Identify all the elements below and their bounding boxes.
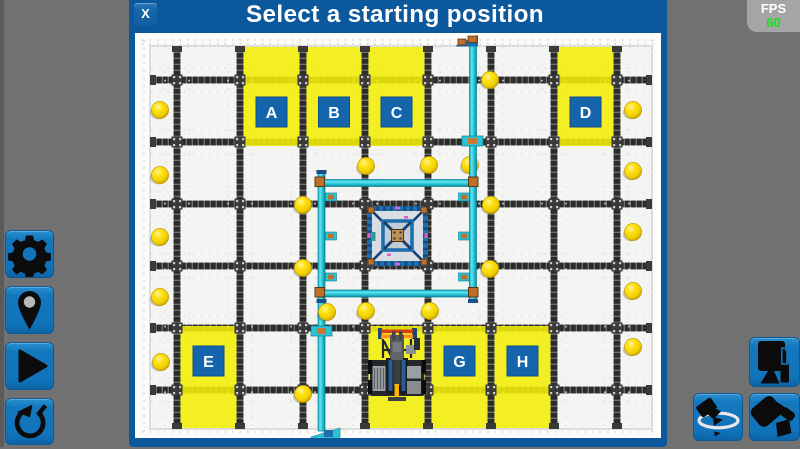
svg-text:H: H (517, 354, 529, 371)
svg-text:C: C (391, 105, 403, 122)
svg-text:G: G (453, 354, 465, 371)
svg-text:A: A (266, 105, 278, 122)
svg-text:B: B (328, 105, 340, 122)
svg-text:E: E (203, 354, 214, 371)
svg-text:D: D (580, 105, 592, 122)
